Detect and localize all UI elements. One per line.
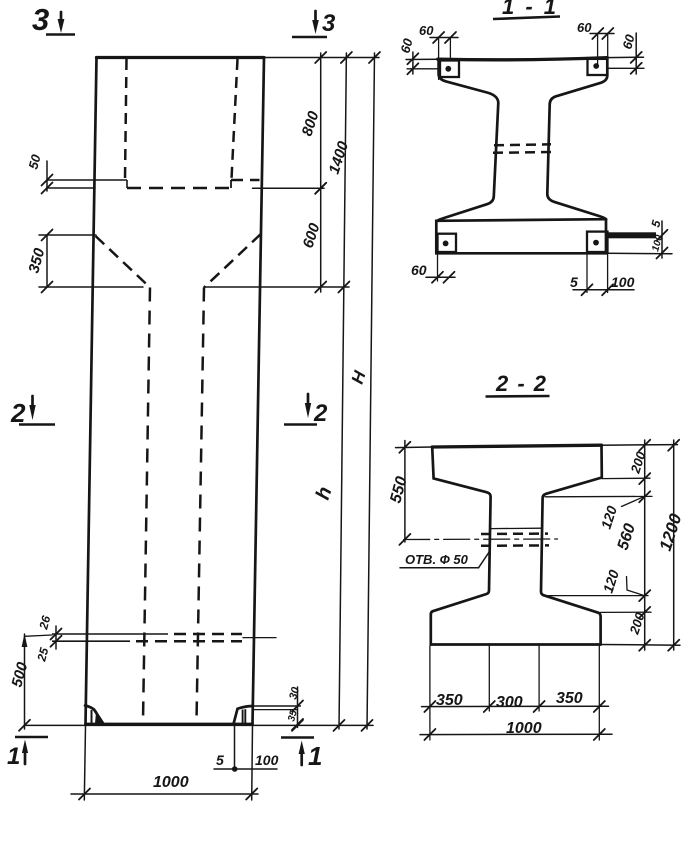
svg-text:350: 350 — [436, 692, 463, 709]
svg-text:1000: 1000 — [153, 774, 189, 791]
svg-text:60: 60 — [411, 262, 427, 278]
svg-text:60: 60 — [419, 23, 434, 38]
svg-text:350: 350 — [556, 690, 583, 707]
svg-text:60: 60 — [577, 20, 592, 35]
svg-text:3: 3 — [322, 10, 336, 37]
svg-text:1: 1 — [7, 743, 20, 770]
svg-text:5: 5 — [216, 752, 224, 768]
svg-text:100: 100 — [611, 274, 635, 290]
svg-text:100: 100 — [255, 752, 279, 768]
svg-text:2 - 2: 2 - 2 — [495, 371, 548, 396]
svg-text:300: 300 — [496, 694, 523, 711]
svg-text:2: 2 — [313, 400, 328, 427]
svg-text:1000: 1000 — [506, 720, 542, 737]
svg-text:3: 3 — [32, 2, 49, 37]
svg-text:1: 1 — [308, 741, 322, 771]
svg-text:5: 5 — [570, 274, 578, 290]
svg-text:ОТВ. Ф 50: ОТВ. Ф 50 — [405, 552, 469, 567]
